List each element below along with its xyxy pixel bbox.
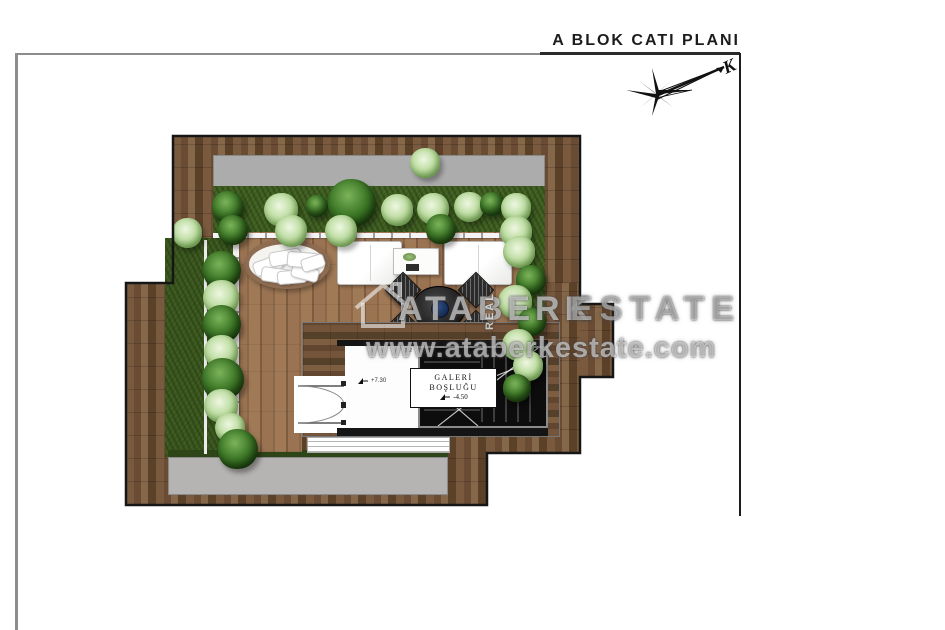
page-title: A BLOK CATI PLANI: [552, 32, 740, 50]
room-wall-bottom: [337, 428, 548, 436]
deck-left-leg: [236, 345, 302, 452]
side-table: [393, 248, 439, 275]
frame-top-line: [15, 53, 540, 55]
watermark-url: www.ataberkestate.com: [366, 332, 716, 365]
frame-left-line: [15, 53, 18, 630]
gallery-level-value: -4.50: [453, 393, 468, 401]
lawn-left: [165, 238, 236, 457]
north-arrow: [656, 67, 724, 100]
door-clearance: [294, 376, 345, 433]
watermark-real: REAL: [484, 294, 496, 330]
watermark-brand: ATABERK: [398, 290, 594, 329]
white-steps-band: [307, 437, 450, 453]
remote-item: [406, 264, 419, 271]
roof-gray-strip-top: [213, 155, 545, 188]
blueprint-canvas: A BLOK CATI PLANI K: [0, 0, 945, 630]
railing-left: [233, 233, 239, 455]
frame-right-line: [739, 53, 741, 516]
gallery-void-label: GALERİ BOŞLUĞU -4.50: [410, 368, 497, 408]
gallery-level-marker: -4.50: [411, 393, 496, 401]
level-marker-icon: [439, 393, 451, 401]
watermark-estate: ESTATE: [570, 290, 741, 329]
north-label: K: [719, 54, 741, 78]
lawn-top: [213, 186, 545, 238]
daybed: [244, 239, 330, 289]
gray-strip-bottom: [168, 457, 448, 495]
plant-tray: [403, 253, 416, 261]
railing-top: [213, 233, 528, 238]
room-level-marker: +7.30: [357, 377, 386, 385]
gallery-label-line1: GALERİ: [411, 373, 496, 383]
room-level-value: +7.30: [371, 378, 386, 384]
level-marker-icon: [357, 377, 369, 385]
planter-divider: [204, 240, 207, 454]
compass-rose: K: [596, 54, 746, 120]
gallery-label-line2: BOŞLUĞU: [411, 383, 496, 393]
